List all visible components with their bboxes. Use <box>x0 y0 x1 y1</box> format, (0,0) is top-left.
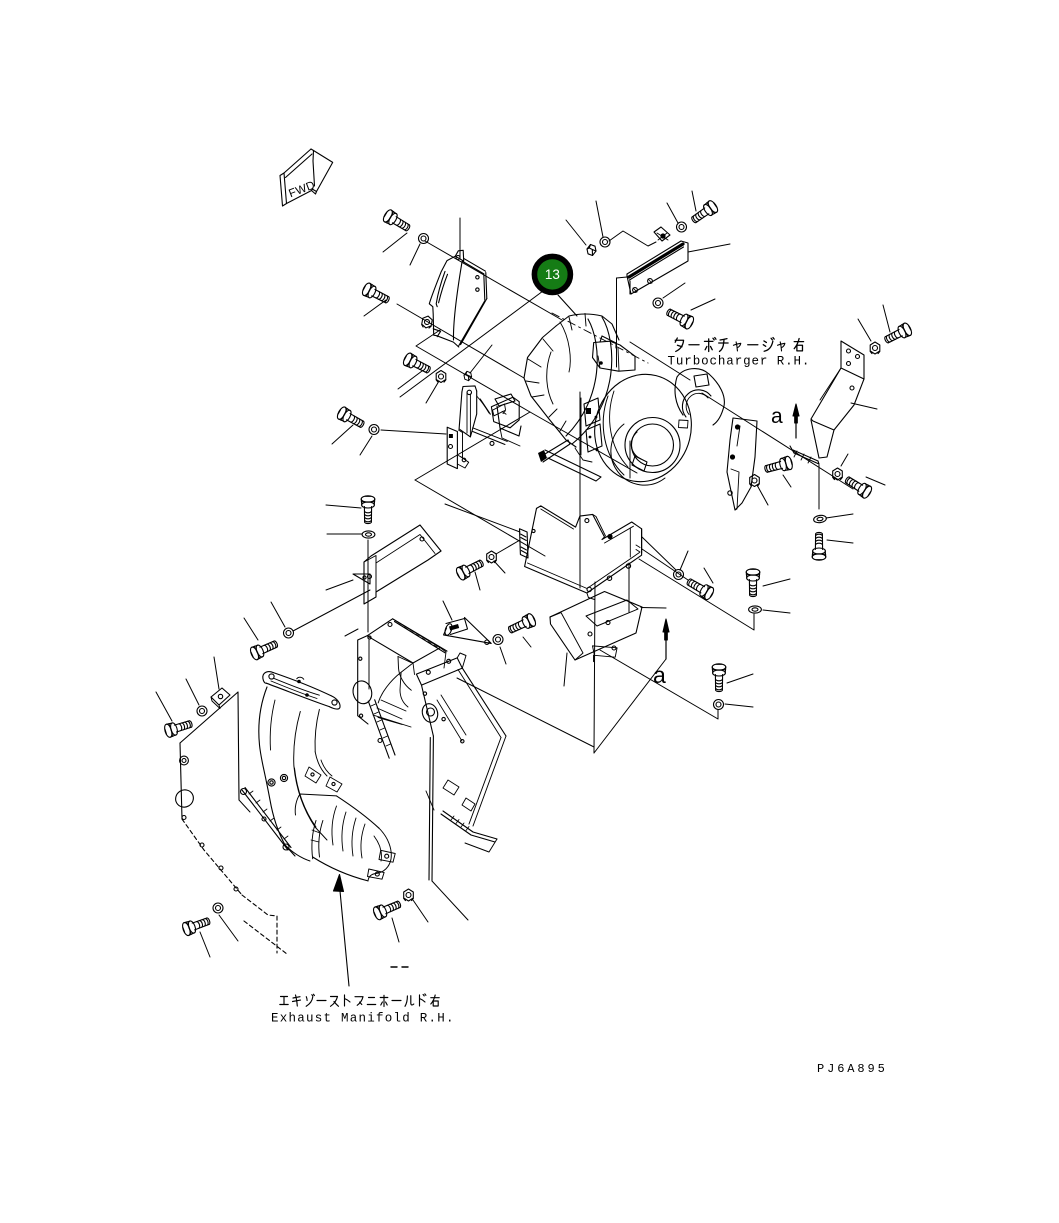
svg-text:a: a <box>653 662 666 688</box>
svg-text:13: 13 <box>545 267 560 282</box>
svg-text:PJ6A895: PJ6A895 <box>817 1062 888 1076</box>
svg-text:Turbocharger R.H.: Turbocharger R.H. <box>668 355 811 369</box>
svg-text:Exhaust Manifold R.H.: Exhaust Manifold R.H. <box>271 1012 455 1026</box>
svg-text:a: a <box>771 405 783 428</box>
